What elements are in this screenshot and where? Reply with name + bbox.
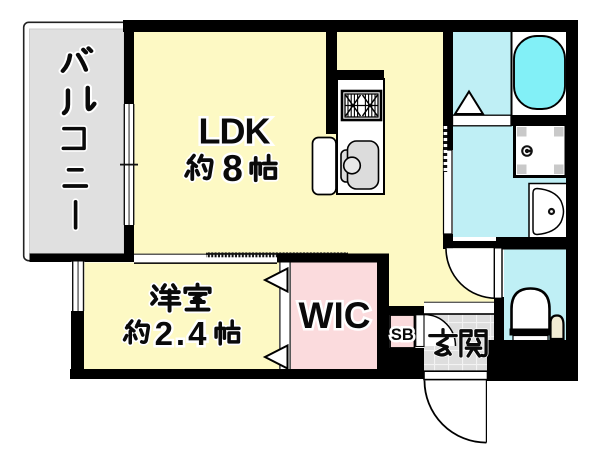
svg-text:2.4: 2.4: [155, 315, 210, 352]
svg-text:WIC: WIC: [299, 295, 371, 336]
svg-text:LDK: LDK: [199, 111, 271, 152]
svg-text:8: 8: [222, 148, 243, 189]
svg-text:SB: SB: [391, 326, 414, 344]
